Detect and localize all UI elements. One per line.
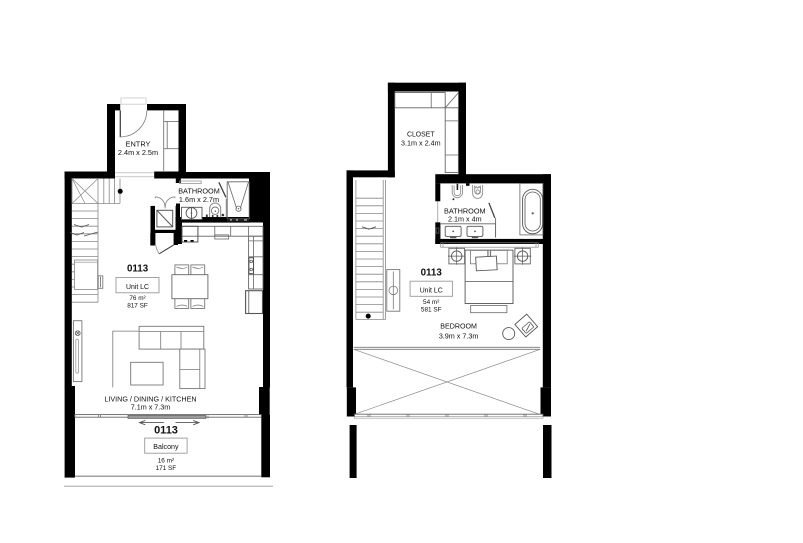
svg-text:16 m²: 16 m² — [158, 457, 174, 464]
svg-text:581 SF: 581 SF — [421, 307, 442, 314]
svg-text:3.1m x 2.4m: 3.1m x 2.4m — [401, 138, 441, 147]
svg-text:BEDROOM: BEDROOM — [440, 323, 477, 331]
svg-text:54 m²: 54 m² — [423, 299, 439, 306]
svg-text:817 SF: 817 SF — [127, 303, 148, 310]
svg-text:171 SF: 171 SF — [156, 465, 177, 472]
svg-text:3.9m x 7.3m: 3.9m x 7.3m — [439, 332, 479, 341]
svg-text:0113: 0113 — [154, 425, 178, 437]
svg-text:2.1m x 4m: 2.1m x 4m — [448, 215, 482, 224]
svg-text:1.6m x 2.7m: 1.6m x 2.7m — [179, 195, 219, 204]
svg-text:Unit LC: Unit LC — [420, 287, 443, 294]
svg-text:Balcony: Balcony — [153, 443, 179, 451]
svg-text:0113: 0113 — [421, 268, 443, 279]
svg-text:Unit LC: Unit LC — [126, 284, 149, 291]
svg-text:76 m²: 76 m² — [129, 295, 145, 302]
svg-text:7.1m x 7.3m: 7.1m x 7.3m — [131, 403, 171, 412]
svg-text:0113: 0113 — [127, 264, 149, 275]
svg-text:2.4m x 2.5m: 2.4m x 2.5m — [118, 148, 158, 157]
